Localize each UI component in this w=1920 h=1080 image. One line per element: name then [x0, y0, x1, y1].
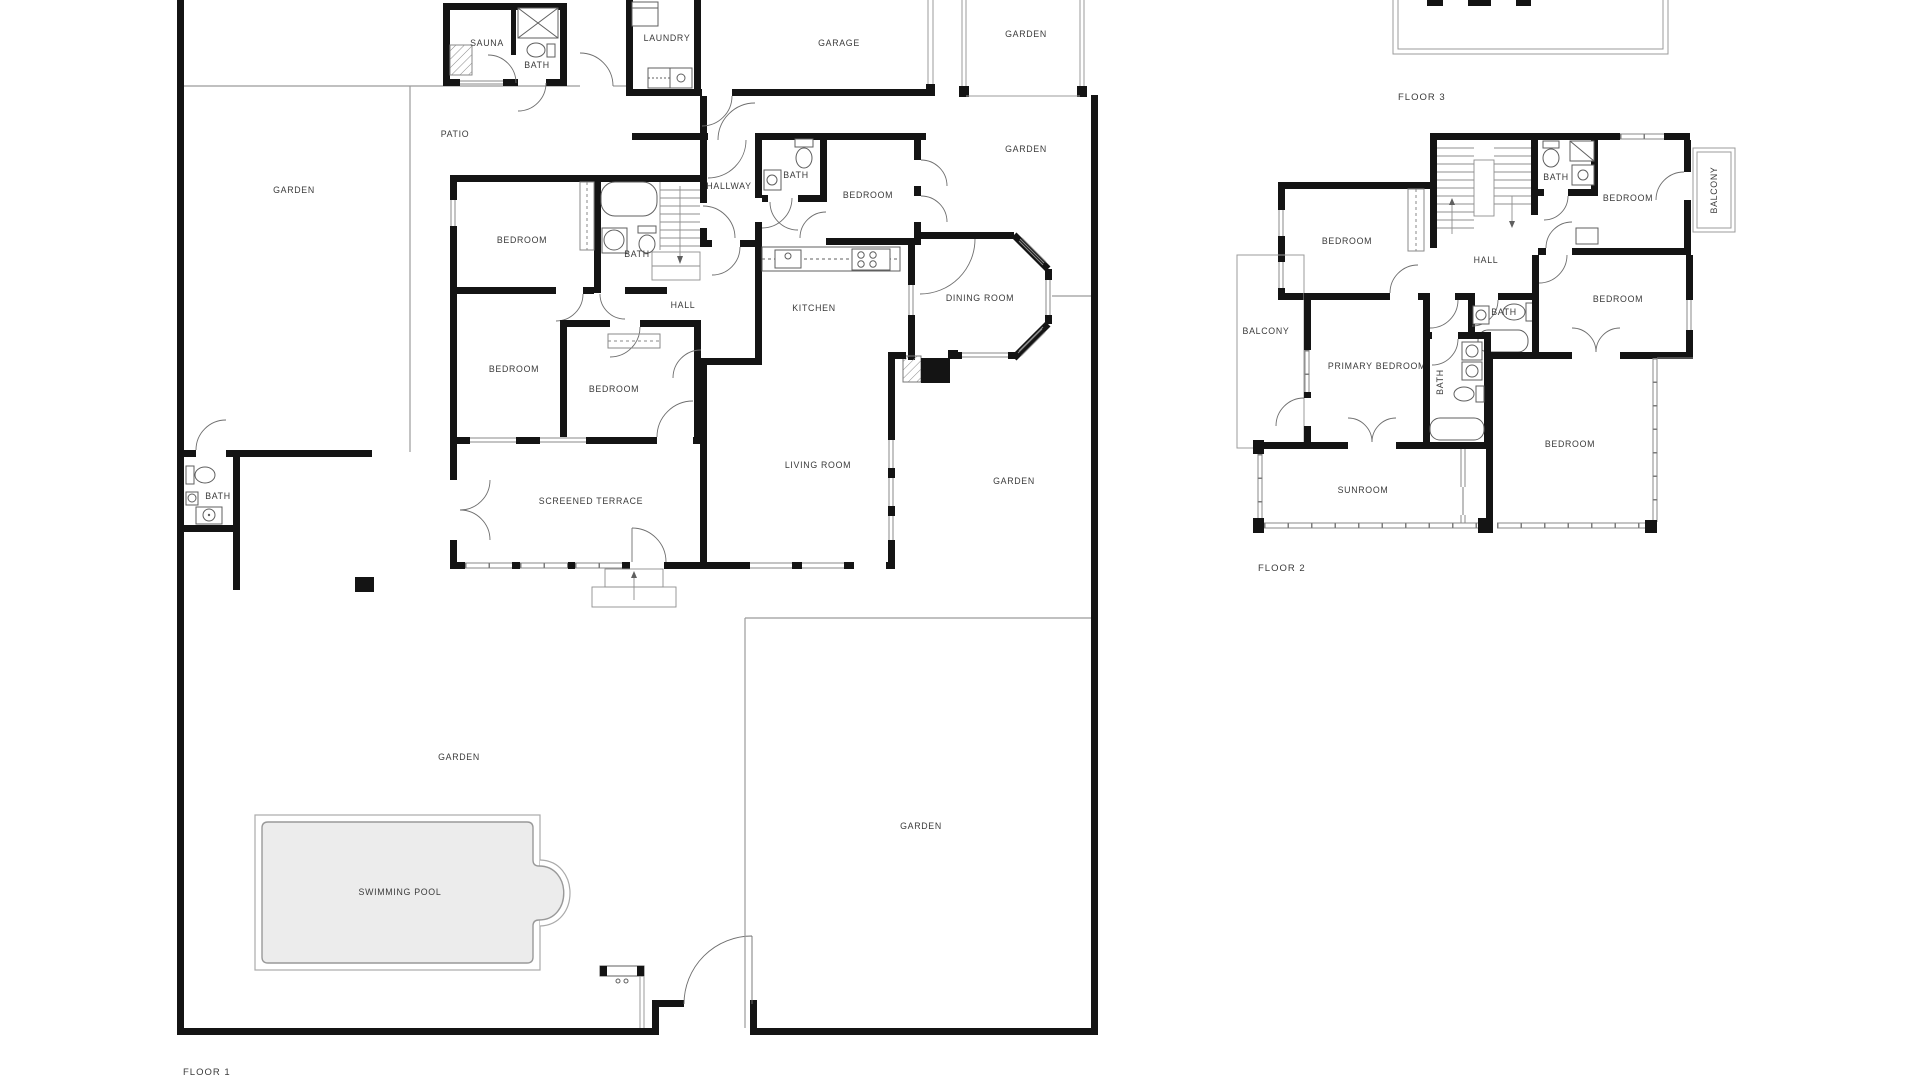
floor2-title: FLOOR 2 [1258, 563, 1306, 574]
room-label-hallway: HALLWAY [706, 181, 751, 191]
room-label-dining: DINING ROOM [946, 293, 1014, 303]
room-label-f2-primary-bedroom: PRIMARY BEDROOM [1328, 361, 1426, 371]
room-label-f2-ensuite-bath: BATH [1435, 369, 1445, 395]
room-label-garden-se: GARDEN [900, 821, 942, 831]
room-label-ne-bedroom: BEDROOM [843, 190, 893, 200]
fireplace [903, 356, 950, 383]
room-label-patio: PATIO [441, 129, 470, 139]
room-label-garden-top-right: GARDEN [1005, 29, 1047, 39]
room-label-hall: HALL [671, 300, 696, 310]
toilet [527, 43, 555, 57]
room-label-sw-bedroom-1: BEDROOM [489, 364, 539, 374]
room-label-f2-left-balcony: BALCONY [1243, 326, 1290, 336]
room-label-garden-center: GARDEN [438, 752, 480, 762]
room-label-garden-bath: BATH [205, 491, 231, 501]
room-label-nw-bedroom: BEDROOM [497, 235, 547, 245]
room-label-kitchen: KITCHEN [792, 303, 836, 313]
room-label-f2-mid-bath: BATH [1491, 307, 1517, 317]
room-label-garden-right-strip: GARDEN [1005, 144, 1047, 154]
room-label-f2-nw-bedroom: BEDROOM [1322, 236, 1372, 246]
sauna-bench [450, 45, 472, 75]
room-label-f2-se-bedroom: BEDROOM [1545, 439, 1595, 449]
laundry-sink-counter [648, 68, 692, 88]
shower-stall [518, 8, 558, 38]
room-label-living-room: LIVING ROOM [785, 460, 851, 470]
room-label-pool: SWIMMING POOL [359, 887, 442, 897]
room-label-west-bath: BATH [624, 249, 650, 259]
swimming-pool: SWIMMING POOL [255, 815, 570, 970]
room-label-f2-right-balcony: BALCONY [1709, 167, 1719, 214]
room-label-garden-mid-right: GARDEN [993, 476, 1035, 486]
room-label-f2-top-bath: BATH [1543, 172, 1569, 182]
room-label-north-bath: BATH [783, 170, 809, 180]
room-label-sw-bedroom-2: BEDROOM [589, 384, 639, 394]
room-label-garage: GARAGE [818, 38, 860, 48]
room-label-f2-east-bedroom: BEDROOM [1593, 294, 1643, 304]
room-label-f2-ne-bedroom: BEDROOM [1603, 193, 1653, 203]
room-label-f2-sunroom: SUNROOM [1338, 485, 1389, 495]
room-label-sauna: SAUNA [470, 38, 504, 48]
room-label-sauna-bath: BATH [524, 60, 550, 70]
washer [632, 2, 658, 26]
room-label-f2-hall: HALL [1474, 255, 1499, 265]
garden-pillar [355, 577, 374, 592]
floor1-title: FLOOR 1 [183, 1067, 231, 1078]
room-label-garden-left: GARDEN [273, 185, 315, 195]
floor-plan-canvas: SAUNA BATH LAUNDRY GA [0, 0, 1920, 1080]
room-label-terrace: SCREENED TERRACE [539, 496, 643, 506]
room-label-laundry: LAUNDRY [644, 33, 691, 43]
floor3-title: FLOOR 3 [1398, 92, 1446, 103]
